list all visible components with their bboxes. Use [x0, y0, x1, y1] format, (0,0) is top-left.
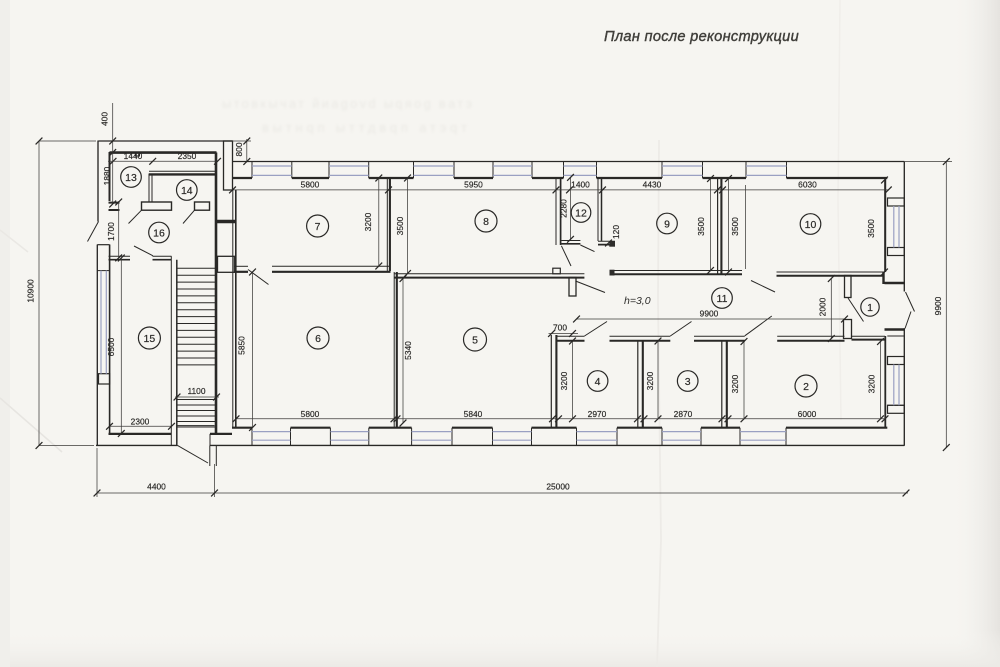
- svg-text:4: 4: [595, 376, 601, 388]
- svg-text:10: 10: [805, 219, 817, 231]
- svg-text:2000: 2000: [817, 297, 827, 316]
- svg-text:700: 700: [553, 323, 567, 333]
- svg-text:3500: 3500: [395, 216, 405, 235]
- svg-text:6500: 6500: [106, 337, 116, 356]
- svg-text:1: 1: [867, 302, 873, 314]
- svg-text:120: 120: [611, 225, 621, 239]
- svg-text:5: 5: [472, 334, 478, 346]
- svg-text:3200: 3200: [866, 374, 876, 393]
- svg-text:1700: 1700: [106, 222, 116, 241]
- svg-text:9900: 9900: [933, 296, 943, 315]
- svg-text:3200: 3200: [559, 371, 569, 390]
- svg-text:8: 8: [483, 216, 489, 228]
- svg-text:2280: 2280: [559, 199, 569, 218]
- svg-text:3500: 3500: [730, 217, 740, 236]
- svg-text:3200: 3200: [645, 371, 655, 390]
- svg-text:13: 13: [125, 172, 137, 184]
- svg-text:6: 6: [315, 333, 321, 345]
- svg-text:5800: 5800: [301, 179, 320, 189]
- svg-text:10900: 10900: [26, 279, 36, 303]
- svg-text:2870: 2870: [674, 409, 693, 419]
- svg-text:11: 11: [717, 293, 728, 305]
- svg-text:2: 2: [803, 381, 809, 393]
- svg-text:16: 16: [153, 227, 165, 239]
- svg-text:5950: 5950: [464, 179, 483, 189]
- svg-text:3500: 3500: [866, 219, 876, 238]
- svg-text:4430: 4430: [643, 179, 662, 189]
- svg-text:9900: 9900: [700, 309, 719, 319]
- svg-text:1400: 1400: [571, 179, 590, 189]
- svg-text:4400: 4400: [147, 481, 166, 491]
- svg-text:12: 12: [575, 207, 587, 219]
- svg-text:6000: 6000: [798, 409, 817, 419]
- svg-text:15: 15: [144, 333, 156, 345]
- svg-text:400: 400: [100, 112, 110, 126]
- svg-text:2300: 2300: [131, 417, 150, 427]
- svg-text:9: 9: [664, 218, 670, 230]
- svg-text:1880: 1880: [102, 166, 112, 185]
- svg-text:2350: 2350: [178, 151, 197, 161]
- svg-text:2970: 2970: [588, 409, 607, 419]
- svg-text:14: 14: [181, 185, 193, 197]
- svg-text:7: 7: [315, 221, 321, 233]
- svg-text:3200: 3200: [363, 212, 373, 231]
- svg-text:5850: 5850: [236, 336, 246, 355]
- svg-text:6030: 6030: [798, 179, 817, 189]
- svg-text:5840: 5840: [464, 409, 483, 419]
- svg-text:h=3,0: h=3,0: [624, 295, 651, 307]
- svg-text:3: 3: [685, 376, 691, 388]
- svg-text:25000: 25000: [546, 481, 570, 491]
- svg-text:800: 800: [234, 142, 244, 156]
- svg-text:3200: 3200: [730, 374, 740, 393]
- svg-text:1100: 1100: [187, 386, 205, 396]
- svg-text:3500: 3500: [696, 217, 706, 236]
- svg-text:5800: 5800: [301, 409, 320, 419]
- svg-text:ытовкычат йиаgovd ыqяog ватэ: ытовкычат йиаgovd ыqяog ватэ: [222, 96, 472, 111]
- svg-text:План после реконструкции: План после реконструкции: [604, 29, 799, 45]
- svg-text:1440: 1440: [124, 151, 143, 161]
- svg-text:5340: 5340: [403, 341, 413, 360]
